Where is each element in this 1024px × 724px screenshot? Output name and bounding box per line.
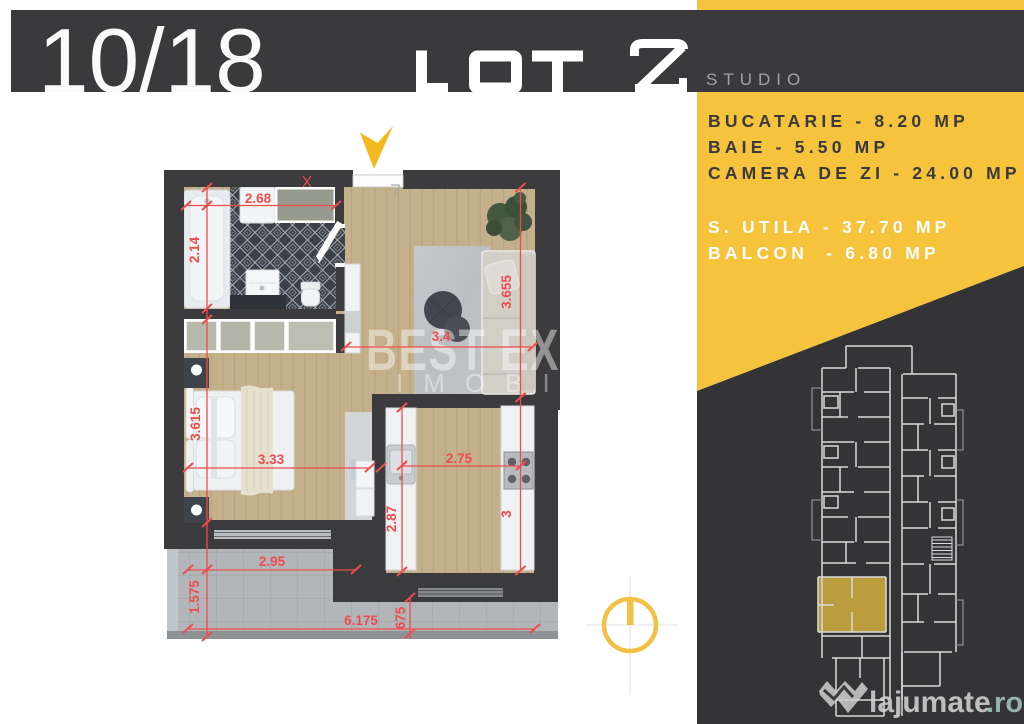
svg-text:1.575: 1.575	[187, 580, 202, 614]
svg-text:3.33: 3.33	[258, 452, 285, 467]
svg-text:BUCATARIE - 8.20 MP: BUCATARIE - 8.20 MP	[708, 111, 969, 131]
svg-text:S. UTILA - 37.70 MP: S. UTILA - 37.70 MP	[708, 217, 951, 237]
svg-text:3.655: 3.655	[499, 275, 514, 309]
svg-text:2.95: 2.95	[259, 554, 286, 569]
svg-text:lajumate: lajumate	[869, 686, 991, 719]
svg-text:2.87: 2.87	[384, 506, 399, 532]
svg-text:STUDIO: STUDIO	[706, 70, 806, 89]
svg-text:3.615: 3.615	[188, 407, 203, 441]
svg-text:3: 3	[499, 510, 514, 518]
svg-text:CAMERA DE ZI - 24.00 MP: CAMERA DE ZI - 24.00 MP	[708, 163, 1021, 183]
svg-text:6.175: 6.175	[344, 613, 378, 628]
svg-text:2.75: 2.75	[446, 451, 473, 466]
svg-text:2.14: 2.14	[187, 236, 202, 263]
svg-text:IMOBILI: IMOBILI	[396, 368, 631, 398]
svg-text:2.68: 2.68	[245, 191, 272, 206]
svg-text:10/18: 10/18	[38, 11, 266, 112]
svg-text:BAIE - 5.50 MP: BAIE - 5.50 MP	[708, 137, 889, 157]
svg-text:BALCON - 6.80 MP: BALCON - 6.80 MP	[708, 243, 940, 263]
svg-text:.ro: .ro	[986, 687, 1023, 719]
svg-text:3.4: 3.4	[432, 329, 451, 344]
svg-text:675: 675	[393, 606, 408, 629]
